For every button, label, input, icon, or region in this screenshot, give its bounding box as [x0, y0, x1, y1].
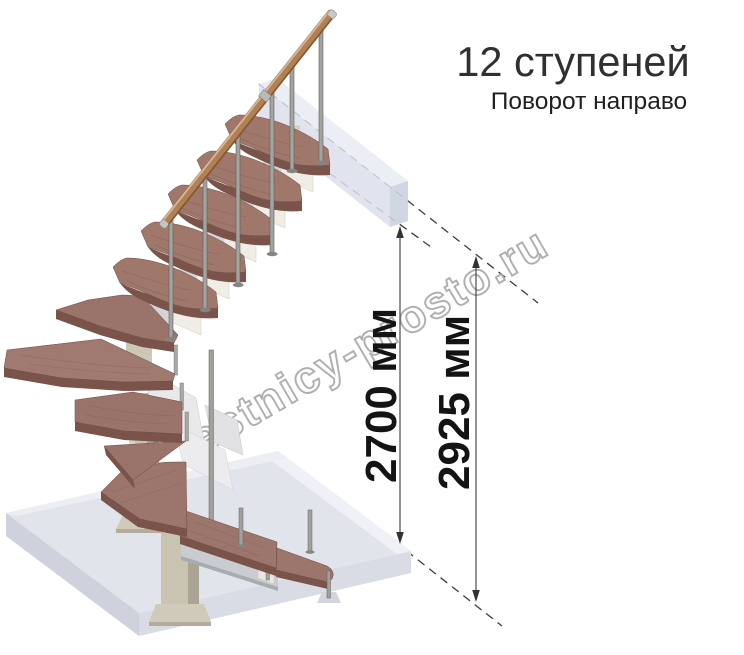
svg-text:Поворот направо: Поворот направо: [491, 88, 687, 115]
svg-text:2925 мм: 2925 мм: [430, 315, 479, 490]
svg-text:12 ступеней: 12 ступеней: [456, 38, 689, 85]
svg-text:2700 мм: 2700 мм: [357, 308, 406, 483]
